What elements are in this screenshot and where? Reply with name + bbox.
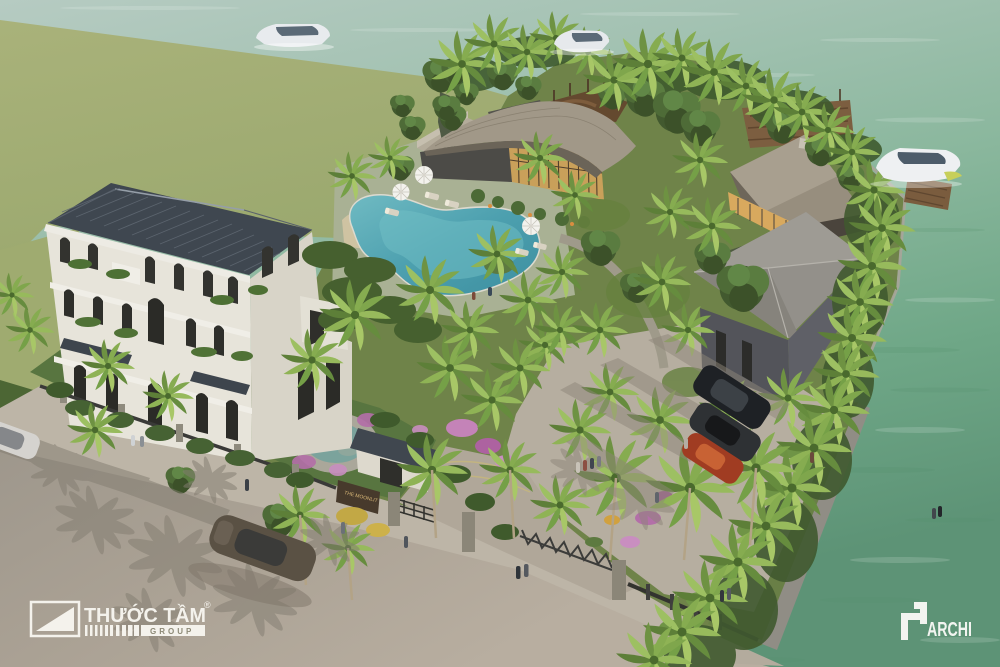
svg-text:ARCHI: ARCHI — [927, 619, 972, 641]
svg-text:THƯỚC TẦM: THƯỚC TẦM — [84, 603, 206, 627]
svg-text:®: ® — [204, 600, 211, 610]
svg-text:GROUP: GROUP — [150, 627, 194, 636]
